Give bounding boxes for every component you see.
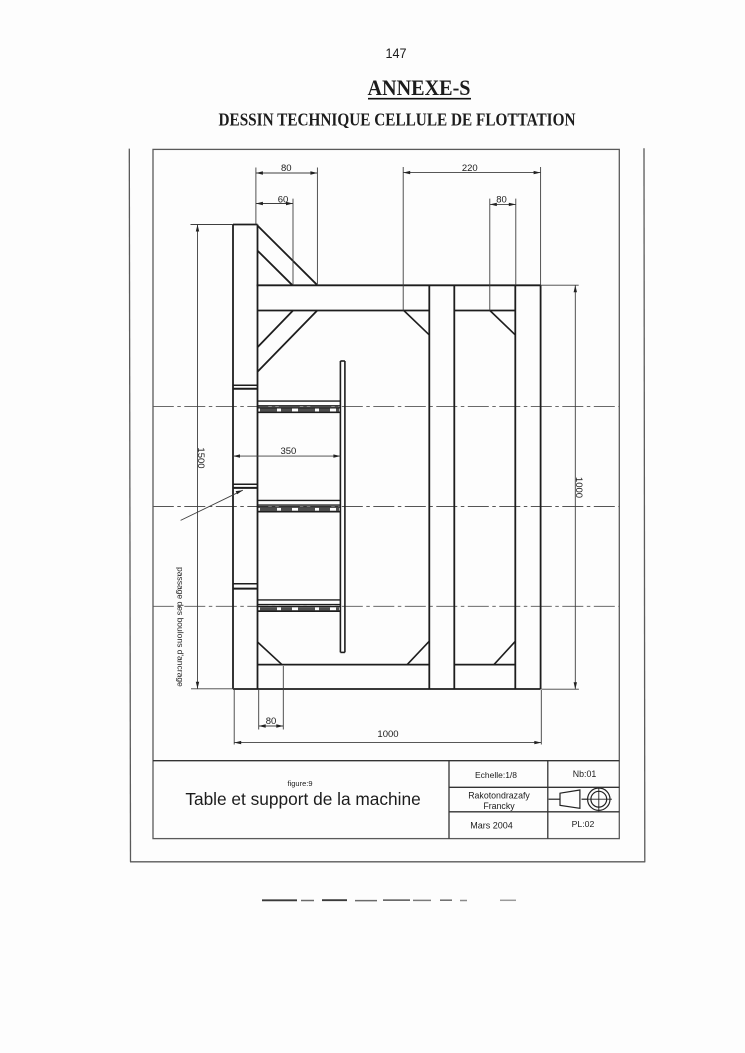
svg-text:220: 220 [462,163,478,174]
svg-text:Francky: Francky [483,801,515,811]
svg-text:60: 60 [278,194,289,205]
svg-text:350: 350 [280,446,296,457]
svg-text:147: 147 [386,46,407,61]
svg-text:Mars 2004: Mars 2004 [470,821,513,831]
svg-text:1500: 1500 [195,447,206,468]
svg-text:PL:02: PL:02 [572,819,595,829]
svg-text:1000: 1000 [573,477,584,498]
svg-text:DESSIN TECHNIQUE CELLULE DE FL: DESSIN TECHNIQUE CELLULE DE FLOTTATION [219,110,576,130]
svg-text:Echelle:1/8: Echelle:1/8 [475,770,517,780]
svg-text:Rakotondrazafy: Rakotondrazafy [468,791,530,801]
svg-text:Table et support de la machine: Table et support de la machine [185,789,420,809]
svg-text:passage des boulons d'ancrage: passage des boulons d'ancrage [176,567,186,687]
svg-text:80: 80 [266,716,277,727]
svg-text:80: 80 [281,163,292,174]
svg-text:1000: 1000 [377,729,398,740]
svg-text:80: 80 [496,194,507,205]
svg-text:ANNEXE-S: ANNEXE-S [368,75,471,100]
svg-text:figure:9: figure:9 [287,779,312,788]
svg-text:Nb:01: Nb:01 [573,769,597,779]
